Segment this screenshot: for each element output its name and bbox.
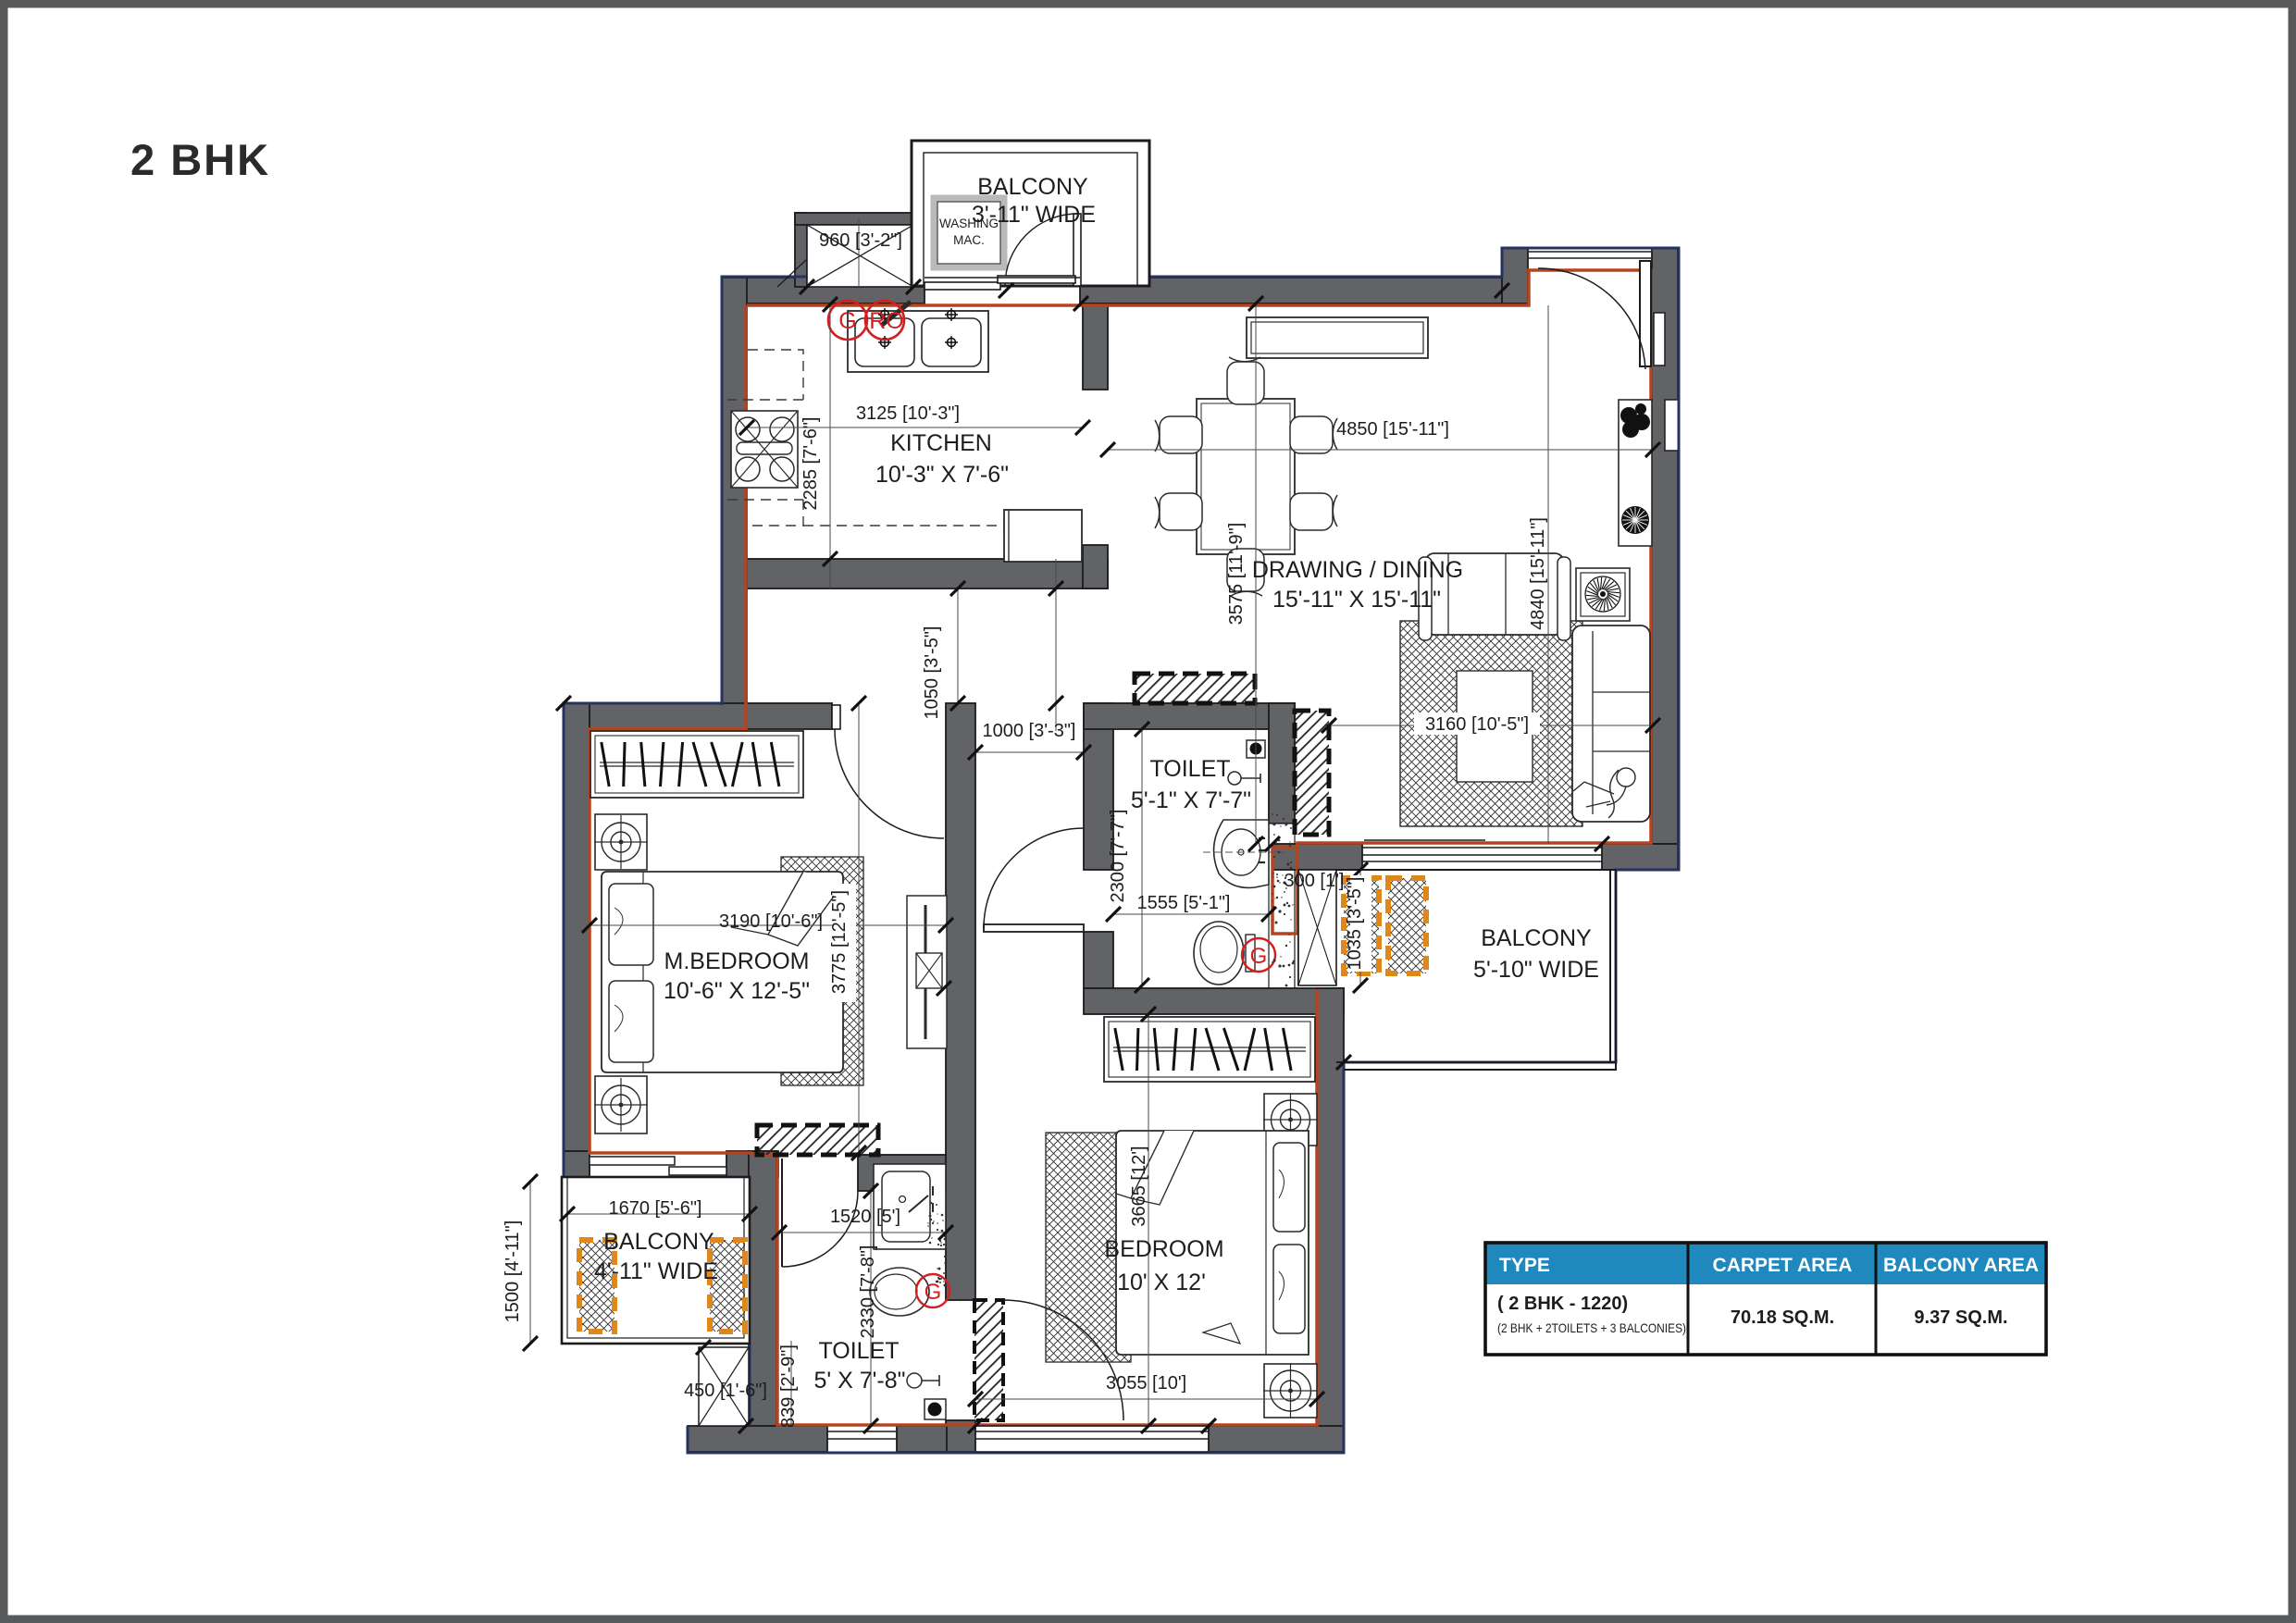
svg-text:WASHING: WASHING <box>939 217 999 230</box>
svg-text:3775 [12'-5"]: 3775 [12'-5"] <box>829 890 850 994</box>
svg-text:DRAWING / DINING: DRAWING / DINING <box>1252 557 1463 583</box>
svg-text:3160 [10'-5"]: 3160 [10'-5"] <box>1425 714 1529 735</box>
svg-text:TYPE: TYPE <box>1499 1255 1550 1276</box>
svg-text:( 2 BHK - 1220): ( 2 BHK - 1220) <box>1497 1294 1628 1314</box>
svg-text:TOILET: TOILET <box>1149 756 1230 782</box>
svg-text:1050 [3'-5"]: 1050 [3'-5"] <box>922 626 942 720</box>
svg-text:70.18 SQ.M.: 70.18 SQ.M. <box>1731 1307 1834 1328</box>
svg-text:RO: RO <box>869 308 904 334</box>
svg-text:1555 [5'-1"]: 1555 [5'-1"] <box>1137 893 1231 913</box>
svg-text:4'-11" WIDE: 4'-11" WIDE <box>594 1258 718 1284</box>
svg-text:839 [2'-9"]: 839 [2'-9"] <box>778 1344 799 1428</box>
svg-text:G: G <box>925 1280 942 1305</box>
svg-text:9.37 SQ.M.: 9.37 SQ.M. <box>1914 1307 2007 1328</box>
svg-text:5' X 7'-8": 5' X 7'-8" <box>813 1368 905 1394</box>
svg-text:1000 [3'-3"]: 1000 [3'-3"] <box>983 721 1076 741</box>
svg-text:4850 [15'-11"]: 4850 [15'-11"] <box>1336 419 1449 440</box>
svg-text:BEDROOM: BEDROOM <box>1104 1236 1223 1262</box>
svg-text:TOILET: TOILET <box>818 1338 899 1364</box>
svg-text:10'-6" X 12'-5": 10'-6" X 12'-5" <box>664 978 810 1004</box>
svg-text:2330 [7'-8"]: 2330 [7'-8"] <box>858 1245 878 1339</box>
svg-text:KITCHEN: KITCHEN <box>890 430 992 456</box>
svg-text:MAC.: MAC. <box>953 233 985 247</box>
svg-text:(2 BHK + 2TOILETS + 3 BALCONIE: (2 BHK + 2TOILETS + 3 BALCONIES) <box>1497 1320 1686 1335</box>
svg-text:3055 [10']: 3055 [10'] <box>1106 1373 1186 1394</box>
svg-text:BALCONY: BALCONY <box>977 174 1088 200</box>
svg-text:3190 [10'-6"]: 3190 [10'-6"] <box>719 911 823 932</box>
svg-text:1500 [4'-11"]: 1500 [4'-11"] <box>503 1220 523 1323</box>
svg-text:G: G <box>1250 944 1268 969</box>
svg-text:BALCONY: BALCONY <box>1481 925 1592 951</box>
svg-text:10'-3" X 7'-6": 10'-3" X 7'-6" <box>875 462 1009 488</box>
svg-text:BALCONY: BALCONY <box>603 1229 714 1255</box>
svg-text:M.BEDROOM: M.BEDROOM <box>664 948 810 974</box>
svg-text:300 [1']: 300 [1'] <box>1285 871 1345 891</box>
svg-text:2 BHK: 2 BHK <box>130 135 270 184</box>
svg-text:4840 [15'-11"]: 4840 [15'-11"] <box>1528 517 1548 630</box>
svg-text:5'-1" X 7'-7": 5'-1" X 7'-7" <box>1131 787 1251 813</box>
svg-text:BALCONY AREA: BALCONY AREA <box>1883 1255 2039 1276</box>
svg-text:5'-10" WIDE: 5'-10" WIDE <box>1473 957 1599 983</box>
svg-text:3575 [11'-9"]: 3575 [11'-9"] <box>1226 523 1247 626</box>
svg-text:3125 [10'-3"]: 3125 [10'-3"] <box>856 403 960 424</box>
svg-text:1670 [5'-6"]: 1670 [5'-6"] <box>609 1198 702 1219</box>
svg-text:2285 [7'-6"]: 2285 [7'-6"] <box>800 417 821 511</box>
svg-text:450 [1'-6"]: 450 [1'-6"] <box>684 1381 767 1401</box>
svg-text:960 [3'-2"]: 960 [3'-2"] <box>819 230 902 251</box>
svg-text:2300 [7'-7"]: 2300 [7'-7"] <box>1108 810 1128 903</box>
svg-text:CARPET AREA: CARPET AREA <box>1713 1255 1853 1276</box>
svg-text:15'-11" X 15'-11": 15'-11" X 15'-11" <box>1272 587 1441 613</box>
svg-text:1520 [5']: 1520 [5'] <box>830 1207 900 1227</box>
svg-text:1035 [3'-5"]: 1035 [3'-5"] <box>1345 877 1365 971</box>
svg-text:10' X 12': 10' X 12' <box>1117 1270 1206 1295</box>
svg-text:3665 [12']: 3665 [12'] <box>1129 1146 1149 1226</box>
